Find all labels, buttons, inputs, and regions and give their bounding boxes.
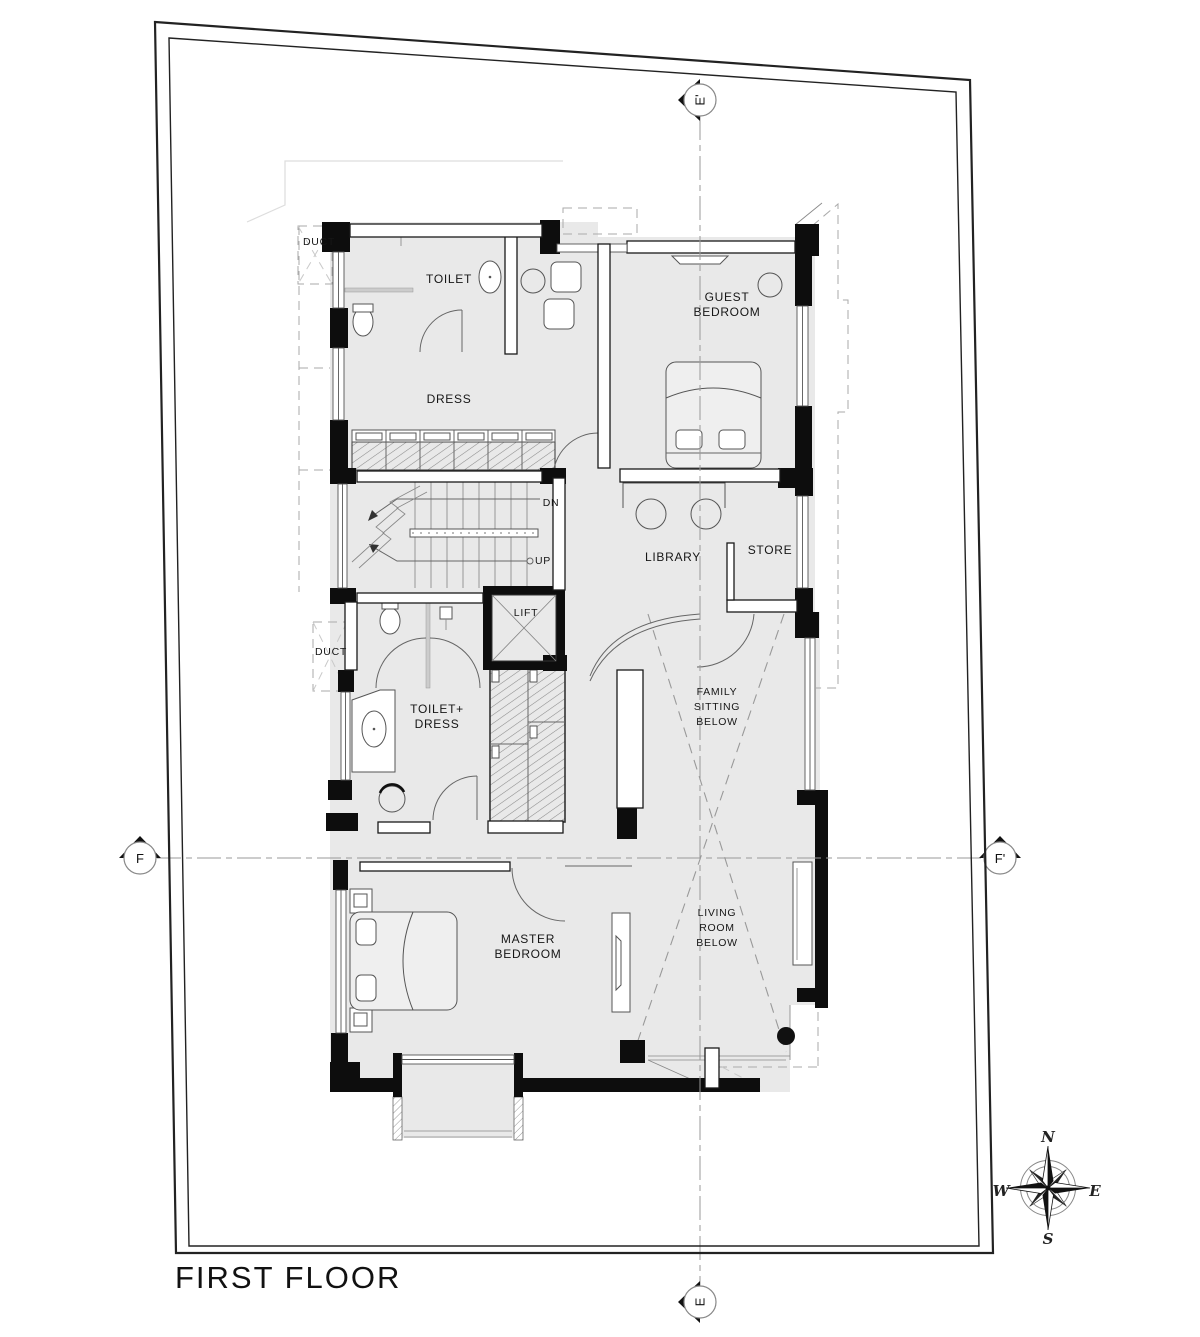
room-label-living-3: BELOW bbox=[696, 937, 737, 949]
pillow bbox=[719, 430, 745, 449]
window bbox=[333, 348, 344, 420]
window bbox=[336, 890, 346, 1033]
drawing-title: FIRST FLOOR bbox=[175, 1260, 401, 1295]
compass-rose: N E S W bbox=[993, 1128, 1102, 1248]
grid-marker-f-left: F bbox=[119, 836, 161, 874]
chair-icon bbox=[544, 299, 574, 329]
room-label-library: LIBRARY bbox=[645, 550, 701, 564]
window bbox=[402, 1055, 514, 1064]
toilet-partition-wall bbox=[505, 236, 517, 354]
room-label-toilet-dress-2: DRESS bbox=[415, 717, 460, 731]
room-label-master-1: MASTER bbox=[501, 932, 555, 946]
window bbox=[797, 496, 808, 588]
shower-head-icon bbox=[440, 607, 452, 619]
room-label-guest-2: BEDROOM bbox=[694, 305, 761, 319]
washbasin-counter bbox=[352, 690, 395, 772]
column bbox=[777, 1027, 795, 1045]
room-label-duct-mid: DUCT bbox=[315, 646, 347, 658]
guest-bed bbox=[666, 362, 761, 468]
floor-plan-sheet: E' E F F' DUCT TOILET GUEST BEDROOM DRES… bbox=[0, 0, 1200, 1337]
room-label-lift: LIFT bbox=[514, 607, 538, 619]
grid-label: F bbox=[136, 851, 144, 866]
room-label-dress: DRESS bbox=[427, 392, 472, 406]
wardrobe-toilet-dress bbox=[490, 666, 565, 822]
room-label-family-3: BELOW bbox=[696, 716, 737, 728]
console bbox=[793, 862, 812, 965]
room-label-family-2: SITTING bbox=[694, 701, 740, 713]
grid-label: E' bbox=[693, 94, 708, 105]
stair-label-up: UP bbox=[535, 555, 551, 567]
room-label-toilet: TOILET bbox=[426, 272, 472, 286]
compass-north-label: N bbox=[1040, 1128, 1056, 1146]
wardrobe-dress bbox=[352, 430, 555, 470]
tv-unit bbox=[612, 913, 630, 1012]
pillow bbox=[356, 975, 376, 1001]
room-label-family-1: FAMILY bbox=[697, 686, 738, 698]
room-label-living-2: ROOM bbox=[699, 922, 734, 934]
room-label-duct-top: DUCT bbox=[303, 236, 335, 248]
window bbox=[797, 306, 808, 406]
compass-west-label: W bbox=[993, 1182, 1012, 1200]
grid-label: F' bbox=[995, 851, 1005, 866]
shower-partition bbox=[345, 288, 413, 292]
grid-marker-e-bottom: E bbox=[678, 1281, 716, 1323]
pillow bbox=[356, 919, 376, 945]
compass-south-label: S bbox=[1043, 1230, 1054, 1248]
window bbox=[341, 692, 350, 780]
room-label-master-2: BEDROOM bbox=[495, 947, 562, 961]
chair-icon bbox=[551, 262, 581, 292]
grid-label: E bbox=[693, 1297, 708, 1306]
room-label-living-1: LIVING bbox=[698, 907, 737, 919]
room-label-store: STORE bbox=[748, 543, 793, 557]
window bbox=[805, 638, 815, 790]
window bbox=[333, 252, 344, 308]
door-leaf bbox=[705, 1048, 719, 1088]
window bbox=[338, 484, 347, 588]
room-label-guest-1: GUEST bbox=[705, 290, 750, 304]
compass-east-label: E bbox=[1088, 1182, 1101, 1200]
grid-marker-e-top: E' bbox=[678, 79, 716, 121]
wc-icon bbox=[380, 608, 400, 634]
pillow bbox=[676, 430, 702, 449]
room-label-toilet-dress-1: TOILET+ bbox=[410, 702, 464, 716]
stair-label-dn: DN bbox=[543, 497, 560, 509]
